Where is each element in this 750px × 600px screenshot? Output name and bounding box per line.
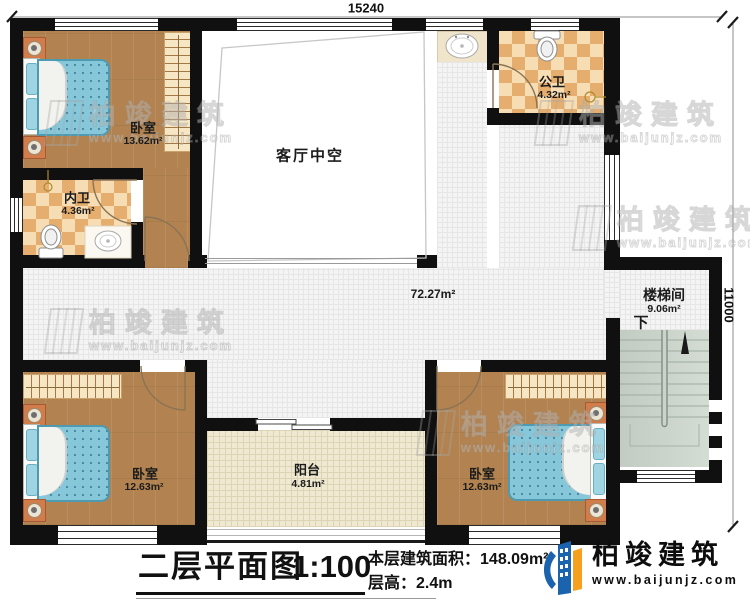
room-area-bedroom-br: 12.63m² bbox=[462, 482, 501, 493]
wall-corridor-north-b bbox=[188, 255, 207, 268]
wall-bedroombr-top-a bbox=[425, 360, 437, 372]
brand-website: www.baijunjz.com bbox=[592, 574, 738, 587]
room-area-bedroom-bl: 12.63m² bbox=[124, 482, 163, 493]
bed-bottom-left bbox=[23, 424, 108, 501]
stair-direction-label: 下 bbox=[633, 316, 648, 331]
wall-bedroombl-right bbox=[195, 360, 207, 545]
brand-logo-icon bbox=[538, 537, 588, 597]
window-top-living bbox=[237, 18, 392, 31]
brand-name: 柏竣建筑 bbox=[592, 542, 724, 569]
wall-bathroom-inner-right-b bbox=[131, 222, 143, 258]
nightstand bbox=[23, 37, 46, 60]
room-label-stairwell: 楼梯间 bbox=[643, 288, 685, 302]
window-stair-bottom bbox=[637, 470, 695, 483]
balcony-railing bbox=[207, 527, 425, 545]
bed-top-left bbox=[23, 58, 108, 135]
watermark-name: 柏竣建筑 bbox=[617, 205, 750, 236]
lamp-icon bbox=[589, 406, 604, 421]
lamp-icon bbox=[27, 140, 42, 155]
lamp-icon bbox=[589, 503, 604, 518]
room-label-living-void: 客厅中空 bbox=[276, 149, 344, 164]
wall-bedroomtl-right bbox=[190, 31, 202, 268]
room-area-bathroom-inner: 4.36m² bbox=[61, 206, 94, 217]
wall-bedroombr-top-b bbox=[481, 360, 620, 372]
watermark-url: www.baijunjz.com bbox=[617, 236, 750, 251]
window-top-bathroom bbox=[531, 18, 579, 31]
window-right-hall bbox=[604, 155, 620, 240]
wall-bathroom-inner-top bbox=[23, 168, 143, 180]
hallway-floor-c bbox=[23, 268, 606, 360]
bedroom-tl-floor-strip bbox=[143, 168, 190, 268]
room-label-bedroom-tl: 卧室 bbox=[130, 122, 156, 135]
wardrobe-bottom-right bbox=[505, 374, 608, 399]
plan-scale: 1:100 bbox=[292, 551, 371, 582]
hallway-floor-a bbox=[437, 62, 487, 268]
wall-bathroom-public-left bbox=[487, 31, 499, 70]
nightstand bbox=[23, 499, 46, 522]
sliding-door bbox=[256, 420, 332, 430]
window-top-sink bbox=[426, 18, 483, 31]
lamp-icon bbox=[27, 408, 42, 423]
wardrobe-top-left bbox=[164, 32, 192, 152]
window-bottom-bedroom-left bbox=[58, 525, 157, 545]
hallway-floor-d bbox=[207, 360, 425, 418]
room-label-bathroom-public: 公卫 bbox=[539, 76, 565, 89]
window-left-bathroom bbox=[10, 198, 23, 232]
nightstand bbox=[23, 136, 46, 159]
wall-bathroom-inner-right-a bbox=[131, 168, 143, 180]
wardrobe-bottom-left bbox=[23, 374, 122, 399]
bed-bottom-right bbox=[508, 423, 606, 500]
stair-vent-block bbox=[709, 424, 722, 436]
window-top-1 bbox=[55, 18, 158, 31]
nightstand bbox=[585, 499, 608, 522]
wall-bedroombr-left bbox=[425, 360, 437, 545]
floor-area-line: 本层建筑面积：148.09m² bbox=[368, 552, 549, 568]
room-area-bathroom-public: 4.32m² bbox=[537, 90, 570, 101]
room-label-bedroom-bl: 卧室 bbox=[132, 468, 158, 481]
floor-height-label: 层高： bbox=[368, 575, 416, 592]
bed-pillow bbox=[593, 428, 605, 460]
stair-vent-block bbox=[709, 400, 722, 412]
room-label-balcony: 阳台 bbox=[294, 464, 320, 477]
wall-corridor-north-a bbox=[10, 255, 145, 268]
wall-bathroom-public-bottom bbox=[487, 113, 618, 125]
room-area-balcony: 4.81m² bbox=[291, 479, 324, 490]
wall-balcony-top-b bbox=[330, 418, 437, 431]
floor-plan-canvas: 柏竣建筑 www.baijunjz.com 柏竣建筑 www.baijunjz.… bbox=[0, 0, 750, 600]
bed-pillow bbox=[593, 463, 605, 495]
hallway-floor-b bbox=[499, 125, 604, 268]
hallway-area-label: 72.27m² bbox=[411, 288, 456, 300]
plan-title: 二层平面图 bbox=[138, 551, 303, 582]
floor-height-line: 层高：2.4m bbox=[368, 576, 452, 592]
wall-railing-stub-right bbox=[417, 255, 437, 268]
wall-stair-divider bbox=[606, 318, 620, 545]
dimension-right-label: 11000 bbox=[722, 287, 737, 322]
stair-vent-block bbox=[709, 448, 722, 460]
wall-stair-top bbox=[604, 257, 722, 270]
sink-counter-top bbox=[437, 31, 489, 64]
room-area-bedroom-tl: 13.62m² bbox=[123, 136, 162, 147]
stair-flights bbox=[620, 330, 709, 467]
stairwell-entry-floor bbox=[604, 270, 620, 318]
wall-balcony-top-a bbox=[207, 418, 258, 431]
title-underline-thin bbox=[136, 598, 436, 599]
lamp-icon bbox=[27, 503, 42, 518]
title-underline-thick bbox=[136, 592, 365, 595]
room-label-bathroom-inner: 内卫 bbox=[64, 192, 90, 205]
room-label-bedroom-br: 卧室 bbox=[469, 468, 495, 481]
wall-left bbox=[10, 18, 23, 545]
dimension-top-label: 15240 bbox=[348, 1, 384, 16]
room-area-stairwell: 9.06m² bbox=[647, 304, 680, 315]
nightstand bbox=[585, 402, 608, 425]
wall-bedroombl-top-a bbox=[10, 360, 140, 372]
lamp-icon bbox=[27, 41, 42, 56]
floor-area-label: 本层建筑面积： bbox=[368, 551, 480, 568]
floor-height-value: 2.4m bbox=[416, 575, 452, 592]
